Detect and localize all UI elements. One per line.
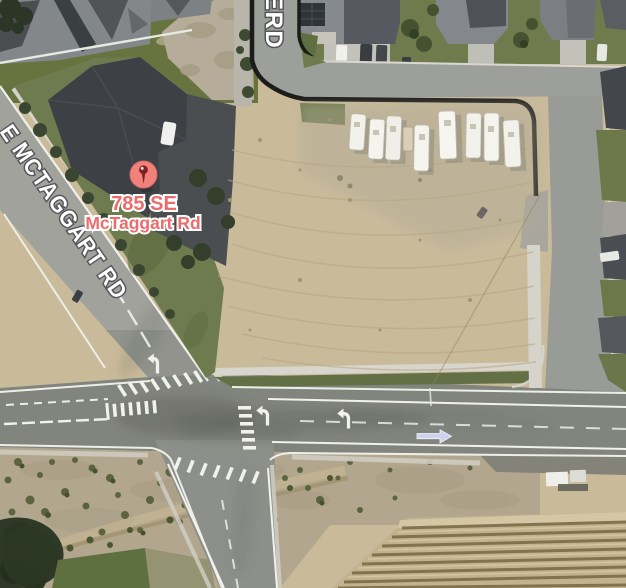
svg-text:ERD: ERD bbox=[260, 0, 287, 49]
svg-text:785 SE: 785 SE bbox=[111, 193, 177, 215]
svg-text:McTaggart Rd: McTaggart Rd bbox=[85, 213, 200, 233]
